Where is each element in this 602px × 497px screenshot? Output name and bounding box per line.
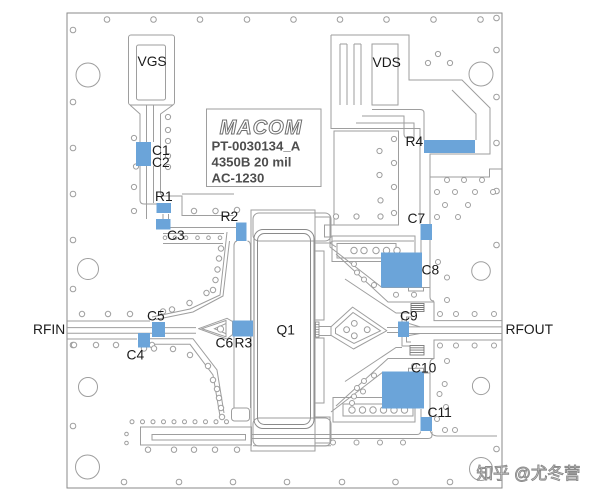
svg-text:RFIN: RFIN [33,322,65,337]
svg-text:R3: R3 [235,336,253,351]
svg-text:RFOUT: RFOUT [506,322,554,337]
svg-text:C3: C3 [167,228,185,243]
svg-text:C6: C6 [216,336,234,351]
svg-text:VGS: VGS [138,54,167,69]
svg-text:AC-1230: AC-1230 [212,171,265,186]
svg-text:C5: C5 [147,309,165,324]
svg-text:C7: C7 [408,211,426,226]
svg-text:C9: C9 [400,309,418,324]
svg-text:Q1: Q1 [277,323,295,338]
svg-text:C4: C4 [127,348,145,363]
svg-text:C10: C10 [411,361,437,376]
svg-text:R2: R2 [221,209,239,224]
svg-text:R4: R4 [406,134,424,149]
svg-text:MACOM: MACOM [220,117,303,139]
svg-text:C2: C2 [152,155,170,170]
svg-text:C11: C11 [428,405,452,420]
svg-text:知乎 @尤冬营: 知乎 @尤冬营 [477,464,581,483]
svg-text:VDS: VDS [373,55,401,70]
svg-text:R1: R1 [155,189,173,204]
svg-text:4350B 20 mil: 4350B 20 mil [212,155,292,170]
svg-text:C8: C8 [422,263,440,278]
svg-text:PT-0030134_A: PT-0030134_A [212,139,301,154]
